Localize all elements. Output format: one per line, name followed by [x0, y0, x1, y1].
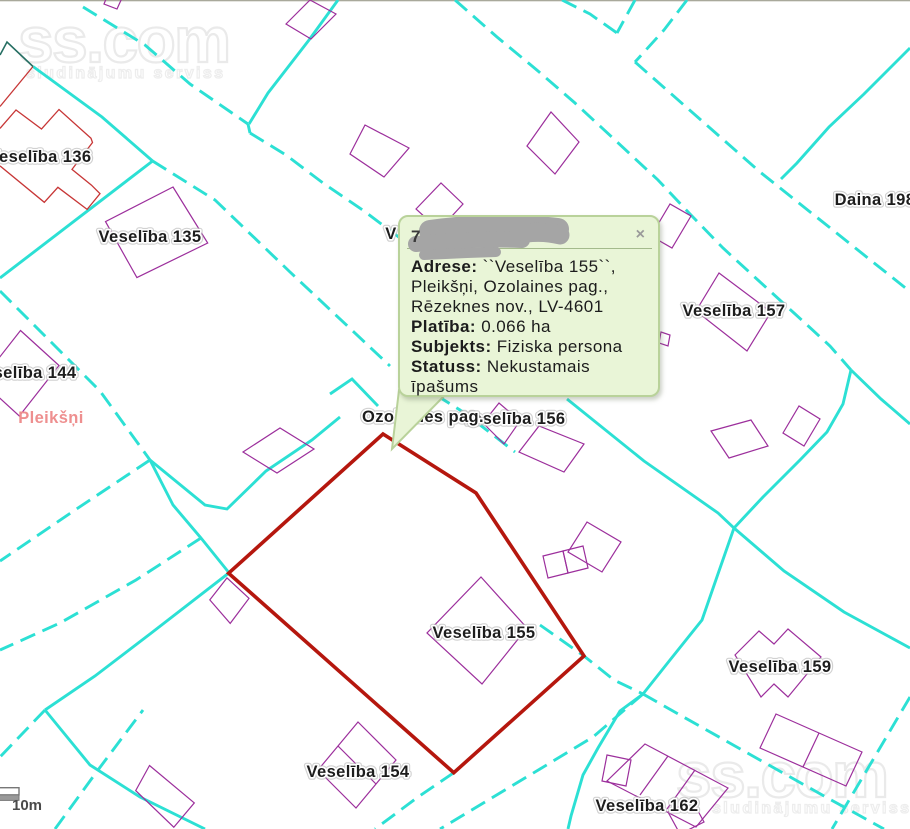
svg-text:Veselība 162: Veselība 162 — [596, 797, 699, 815]
svg-text:Veselība 136: Veselība 136 — [0, 148, 91, 166]
svg-text:Pleikšņi: Pleikšņi — [18, 409, 84, 427]
svg-text:Veselība 154: Veselība 154 — [307, 763, 410, 781]
svg-text:10m: 10m — [12, 797, 42, 814]
svg-text:Daina 198: Daina 198 — [835, 191, 910, 209]
svg-text:Veselība 155: Veselība 155 — [433, 624, 536, 642]
svg-text:V: V — [385, 225, 396, 243]
svg-text:sludinājumu serviss: sludinājumu serviss — [712, 800, 910, 817]
svg-text:sludinājumu serviss: sludinājumu serviss — [26, 65, 225, 82]
svg-text:Veselība 159: Veselība 159 — [729, 658, 832, 676]
svg-text:Veselība 135: Veselība 135 — [99, 228, 202, 246]
svg-text:Veselība 157: Veselība 157 — [683, 302, 786, 320]
svg-text:Veselība 144: Veselība 144 — [0, 364, 77, 382]
